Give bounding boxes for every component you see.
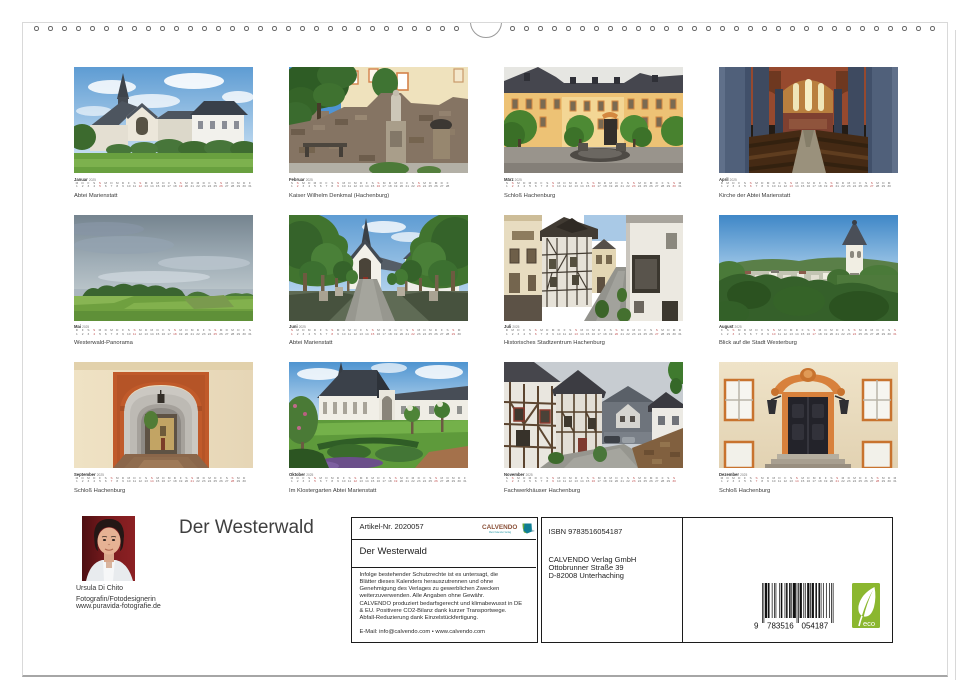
svg-text:CALVENDO: CALVENDO <box>482 524 517 531</box>
svg-text:054187: 054187 <box>802 621 829 629</box>
svg-text:783516: 783516 <box>767 621 794 629</box>
svg-text:eco: eco <box>863 619 875 628</box>
svg-text:9: 9 <box>754 621 759 629</box>
svg-text:Mein Kalender-Verlag: Mein Kalender-Verlag <box>489 531 512 534</box>
